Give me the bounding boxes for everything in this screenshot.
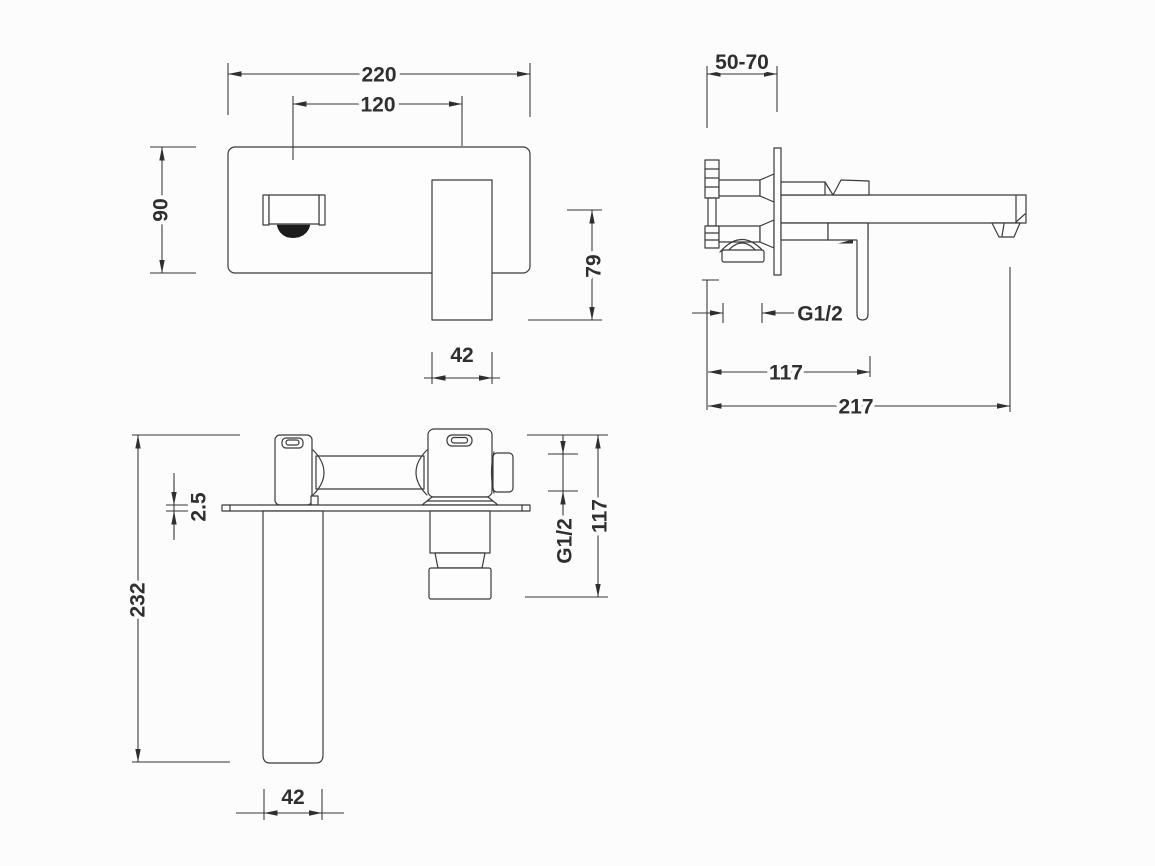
top-view: 232 2.5 42 G1/2 — [126, 429, 611, 820]
side-lever-bar — [857, 223, 868, 320]
faucet-technical-drawing: 220 120 90 79 42 — [0, 0, 1155, 866]
handle-lever-grip — [429, 568, 491, 599]
front-view: 220 120 90 79 42 — [149, 63, 605, 384]
dim-label-plate-width: 220 — [361, 63, 396, 86]
spout-mount-nub — [311, 496, 318, 505]
dim-label-plate-thickness: 2.5 — [187, 492, 210, 522]
dim-label-spout-to-handle: 120 — [360, 93, 395, 116]
dim-top-total-length: 232 — [126, 435, 240, 762]
front-spout-right-flange — [319, 195, 325, 225]
handle-pivot-tab — [493, 453, 513, 492]
side-handle-grip — [833, 180, 869, 195]
dim-label-handle-drop: 79 — [582, 254, 605, 277]
connector-thread-bottom — [705, 226, 719, 248]
front-spout-body — [269, 195, 319, 224]
top-handle-lever — [429, 511, 491, 599]
side-cartridge-housing — [720, 240, 764, 263]
dim-label-wall-depth: 50-70 — [715, 51, 769, 74]
front-handle-lever — [432, 180, 492, 320]
side-inwall-connector — [705, 160, 719, 248]
side-cone-top — [760, 174, 774, 202]
dim-label-thread: G1/2 — [797, 302, 843, 325]
dim-label-body-length: 117 — [588, 499, 611, 533]
dim-label-total-length: 232 — [126, 582, 149, 617]
top-spout-tube — [263, 511, 323, 763]
dim-label-plate-height: 90 — [149, 198, 172, 221]
side-lower-hub — [781, 223, 828, 240]
hub-notch-line — [825, 182, 833, 195]
side-wall-plate — [774, 148, 781, 275]
top-spout-body — [275, 435, 318, 505]
top-wall-plate-edge — [222, 505, 530, 511]
side-spout-outlet — [992, 223, 1020, 237]
connector-thread-top — [705, 160, 719, 198]
dim-front-handle-width: 42 — [424, 344, 500, 384]
dim-front-handle-drop: 79 — [528, 210, 605, 320]
handle-lever-base — [430, 511, 490, 553]
dim-label-handle-distance: 117 — [769, 361, 803, 384]
side-upper-hub — [781, 182, 825, 195]
dim-top-plate-thickness: 2.5 — [166, 473, 210, 540]
top-connecting-tube — [316, 456, 424, 489]
front-spout-left-flange — [263, 195, 269, 225]
dim-label-spout-reach: 217 — [838, 395, 873, 418]
dim-top-body-length: 117 — [525, 435, 611, 597]
dim-top-spout-width: 42 — [236, 786, 344, 820]
side-supply-tube-top — [719, 180, 760, 196]
dim-side-thread: G1/2 — [692, 302, 843, 325]
housing-base — [722, 250, 764, 262]
dim-front-plate-height: 90 — [149, 147, 196, 273]
handle-hub-slot — [447, 435, 472, 446]
handle-lever-collar — [435, 553, 485, 568]
dim-label-thread: G1/2 — [553, 518, 576, 564]
dim-side-handle-distance: 117 — [708, 356, 870, 384]
top-handle-hub — [422, 429, 513, 505]
dim-side-wall-depth: 50-70 — [707, 51, 777, 128]
side-view: 50-70 G1/2 117 217 — [692, 51, 1026, 418]
dim-top-thread: G1/2 — [548, 435, 578, 564]
connector-shaft — [708, 198, 716, 226]
dim-label-spout-width: 42 — [281, 786, 304, 809]
side-cone-bottom — [760, 220, 774, 248]
dim-label-handle-width: 42 — [450, 344, 473, 367]
side-spout — [781, 195, 1026, 223]
